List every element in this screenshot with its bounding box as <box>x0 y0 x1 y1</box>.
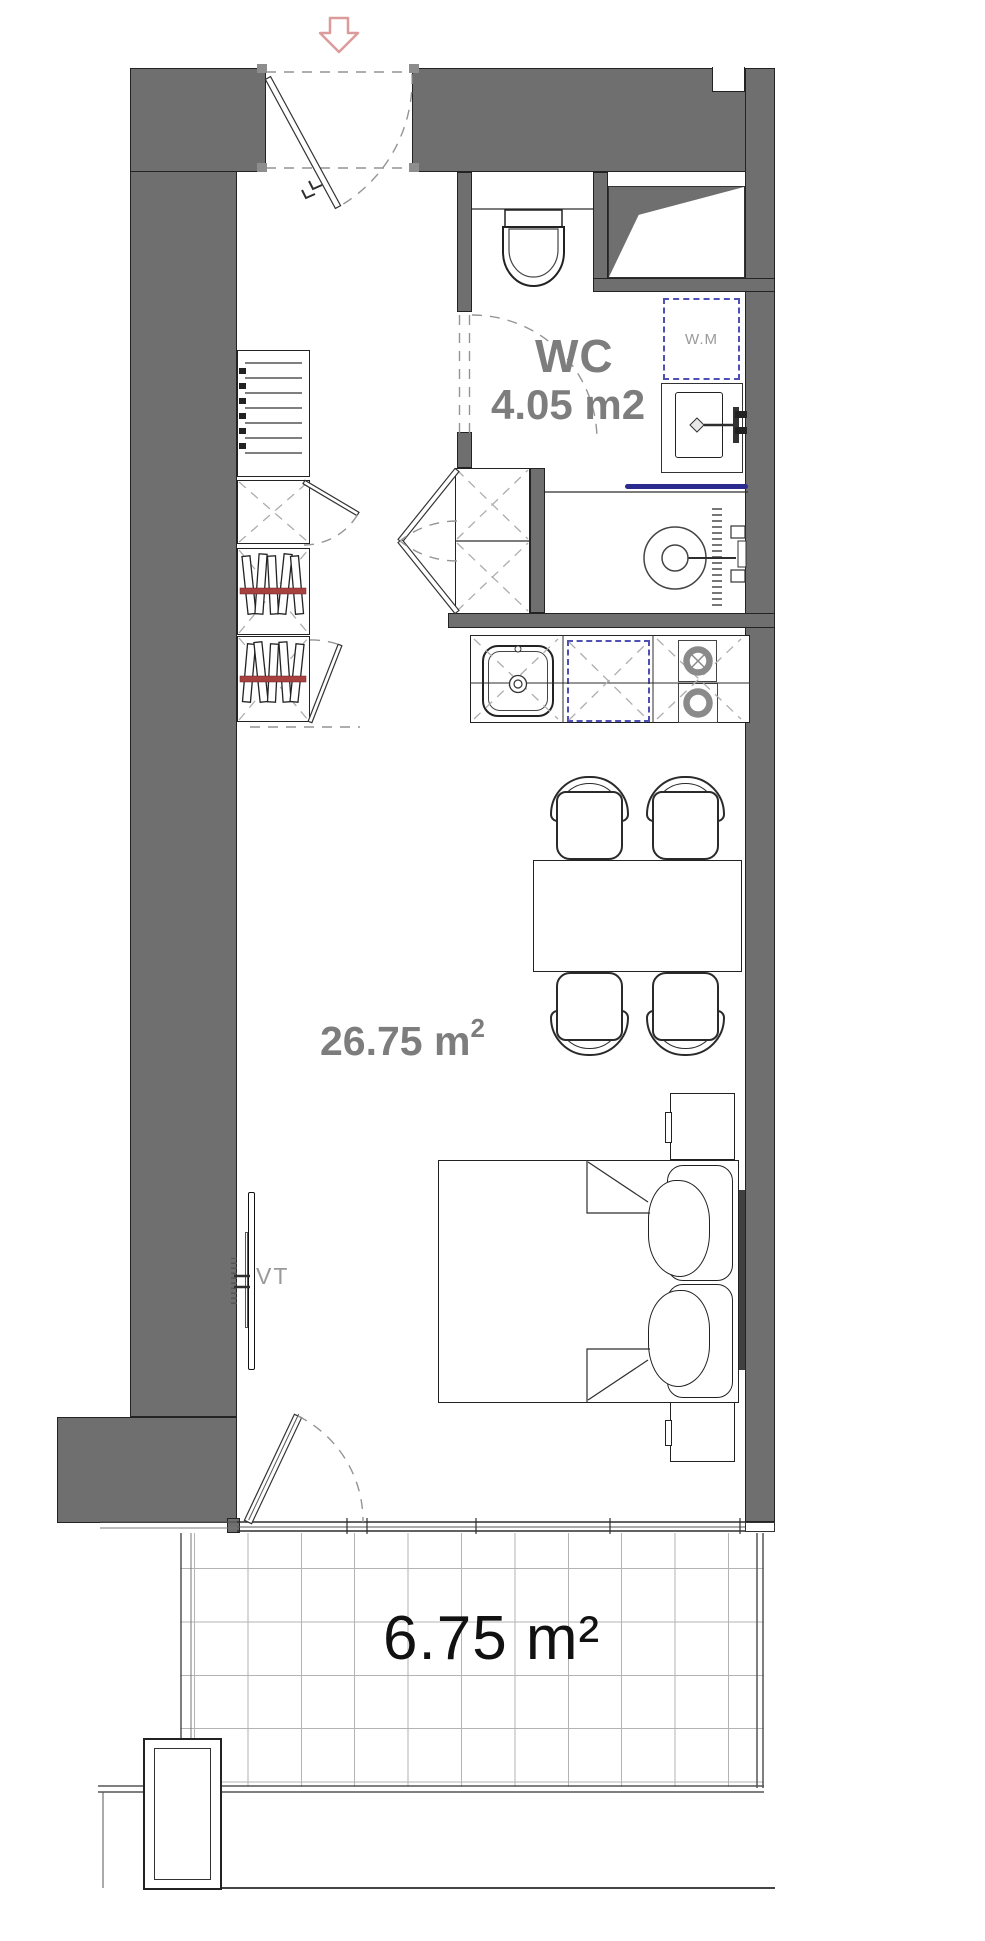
toilet <box>472 209 593 286</box>
balcony-door-jamb <box>227 1518 240 1533</box>
radiator <box>738 1190 745 1370</box>
closet-cabinet <box>237 480 310 544</box>
stove-plate-2 <box>678 683 718 723</box>
entrance-door-swing-arc <box>340 74 412 206</box>
tv-label: VT <box>256 1263 289 1290</box>
nightstand-bottom <box>670 1402 735 1462</box>
shaft-bottom-wall <box>593 278 775 292</box>
bathroom-wall-mid <box>457 432 472 468</box>
nightstand-bottom-handle <box>665 1420 672 1446</box>
entrance-door <box>257 64 419 208</box>
dining-table <box>533 860 742 972</box>
wardrobe-lower <box>237 636 310 722</box>
floor-plan: W.M <box>0 0 985 1941</box>
washing-machine-box: W.M <box>663 298 740 380</box>
pillow-2 <box>648 1290 710 1387</box>
bathroom-wall-upper <box>457 172 472 312</box>
hall-cabinet <box>455 468 530 614</box>
chair-seat <box>556 972 623 1041</box>
balcony-column-inner <box>154 1748 211 1880</box>
shower-glass-panel <box>625 484 748 489</box>
chair-seat <box>652 972 719 1041</box>
living-area-label: 26.75 m2 <box>320 1013 485 1065</box>
pillow-1 <box>648 1180 710 1277</box>
living-area-exponent: 2 <box>470 1013 484 1043</box>
entrance-door-leaf <box>265 77 340 209</box>
washbasin-bowl <box>675 392 723 458</box>
closet-shelves <box>237 350 310 477</box>
wall-notch <box>712 67 745 92</box>
chair-seat <box>556 791 623 860</box>
chair-seat <box>652 791 719 860</box>
living-area-value: 26.75 <box>320 1018 423 1064</box>
shaft-void-fill <box>609 187 744 277</box>
shaft-left-wall <box>593 172 608 292</box>
top-left-wall <box>130 68 266 172</box>
stove-plate-1 <box>678 640 717 682</box>
washing-machine-label: W.M <box>685 331 718 348</box>
bottom-left-wall <box>57 1417 237 1523</box>
shower-hatch-panel <box>712 508 722 608</box>
wc-area-label: 4.05 m2 <box>491 381 645 429</box>
wc-room-label: WC <box>535 329 614 383</box>
tv-mount-hatch <box>231 1258 237 1304</box>
balcony-area-label: 6.75 m² <box>383 1603 600 1674</box>
shaft-cell <box>608 186 745 278</box>
wardrobe-upper <box>237 548 310 635</box>
nightstand-top-handle <box>665 1112 672 1143</box>
dishwasher-box <box>567 640 650 722</box>
living-area-unit: m <box>434 1018 470 1064</box>
right-wall-cap <box>745 1522 775 1532</box>
entrance-arrow-icon <box>320 18 358 52</box>
kitchen-sink-basin <box>488 651 548 711</box>
bathroom-bottom-wall <box>448 613 775 628</box>
shower-wall <box>530 468 545 613</box>
tv-body <box>248 1192 255 1370</box>
left-wall <box>130 68 237 1417</box>
nightstand-top <box>670 1093 735 1160</box>
